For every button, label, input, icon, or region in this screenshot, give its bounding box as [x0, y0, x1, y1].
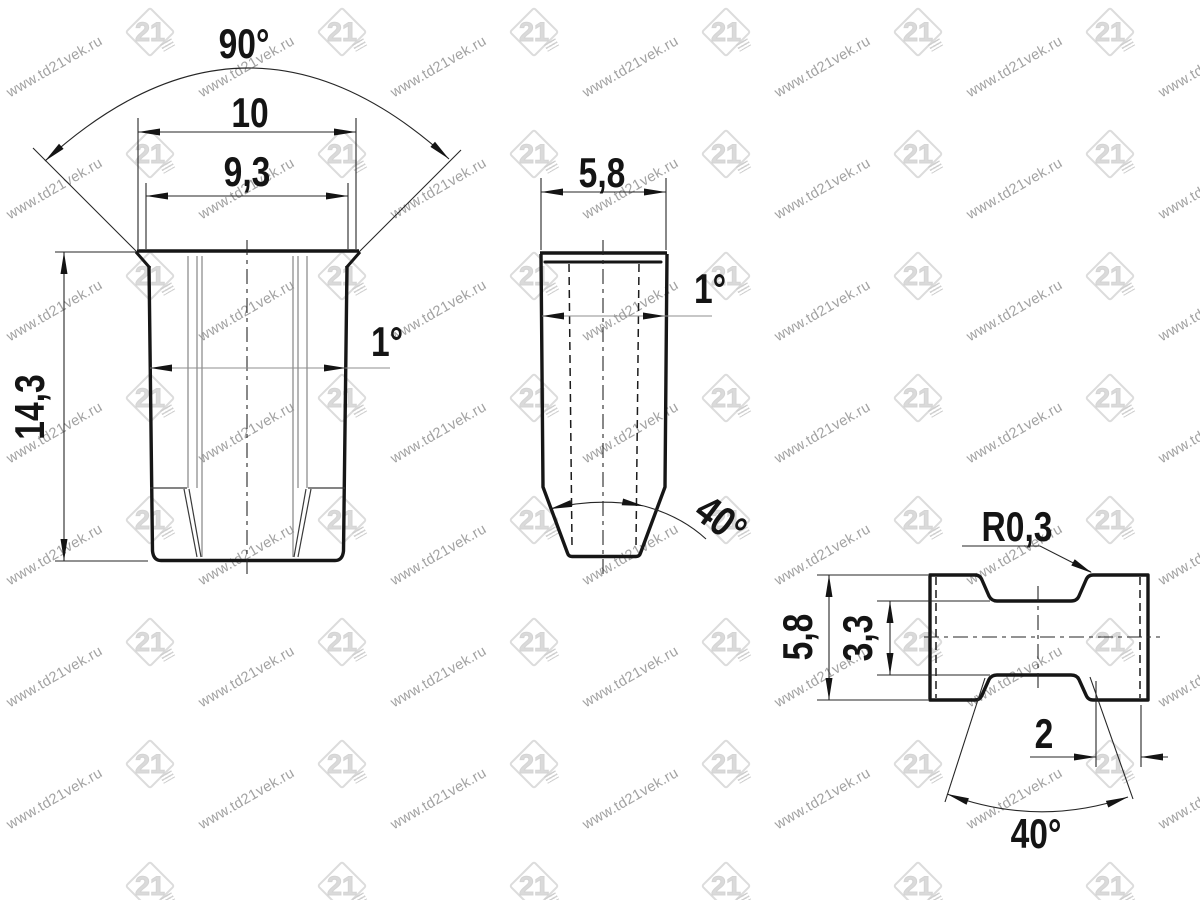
side-view: 5,8 1° 40° — [540, 151, 755, 578]
technical-drawing: 90° 10 9,3 14,3 1° — [0, 0, 1200, 900]
angle-construction-line — [945, 678, 985, 802]
front-flange-bevel-right — [346, 252, 360, 268]
arrowhead — [45, 144, 64, 161]
arrowhead — [887, 653, 894, 675]
dim-label-3-3: 3,3 — [836, 615, 882, 662]
arrowhead — [542, 313, 564, 320]
front-flange-bevel-left — [136, 252, 150, 268]
arrowhead — [826, 678, 833, 700]
dim-label-1deg-front: 1° — [371, 320, 403, 366]
arrowhead — [324, 365, 346, 372]
arrowhead — [1071, 559, 1092, 573]
dim-label-5-8-bottom: 5,8 — [776, 614, 822, 661]
arrowhead — [643, 313, 665, 320]
arrowhead — [326, 193, 348, 200]
arrowhead — [146, 193, 168, 200]
arrowhead — [430, 142, 449, 159]
arrowhead — [1106, 797, 1128, 808]
arrowhead — [61, 539, 68, 561]
dim-label-2: 2 — [1035, 712, 1054, 758]
dim-label-40deg-side: 40° — [686, 487, 754, 555]
dim-label-90deg: 90° — [219, 22, 270, 68]
arrowhead — [887, 601, 894, 623]
bottom-view: R0,3 5,8 3,3 2 40° — [776, 505, 1168, 858]
arrowhead — [541, 189, 563, 196]
dim-label-5-8-side: 5,8 — [579, 151, 626, 197]
arrowhead — [334, 129, 356, 136]
arrowhead — [826, 575, 833, 597]
dim-label-9-3: 9,3 — [224, 150, 271, 196]
front-body-outline — [149, 266, 347, 561]
arrowhead — [1141, 754, 1163, 761]
arrowhead — [644, 189, 666, 196]
dim-label-r0-3: R0,3 — [982, 505, 1053, 551]
countersink-line-right — [359, 150, 461, 252]
arrowhead — [61, 252, 68, 274]
arrowhead — [138, 129, 160, 136]
dim-label-10: 10 — [231, 91, 268, 137]
countersink-line-left — [33, 148, 137, 252]
arrowhead — [1074, 754, 1096, 761]
dim-label-1deg-side: 1° — [694, 267, 726, 313]
drawing-canvas: www.td21vek.ruwww.td21vek.ruwww.td21vek.… — [0, 0, 1200, 900]
arrowhead — [947, 794, 969, 805]
arrowhead — [150, 365, 172, 372]
arrowhead — [622, 499, 644, 507]
angle-40-arc — [947, 794, 1128, 812]
arrowhead — [550, 500, 572, 509]
side-body-outline — [541, 254, 667, 557]
front-view: 90° 10 9,3 14,3 1° — [8, 22, 461, 575]
dim-label-40deg-bottom: 40° — [1011, 812, 1062, 858]
dim-label-14-3: 14,3 — [8, 374, 54, 439]
